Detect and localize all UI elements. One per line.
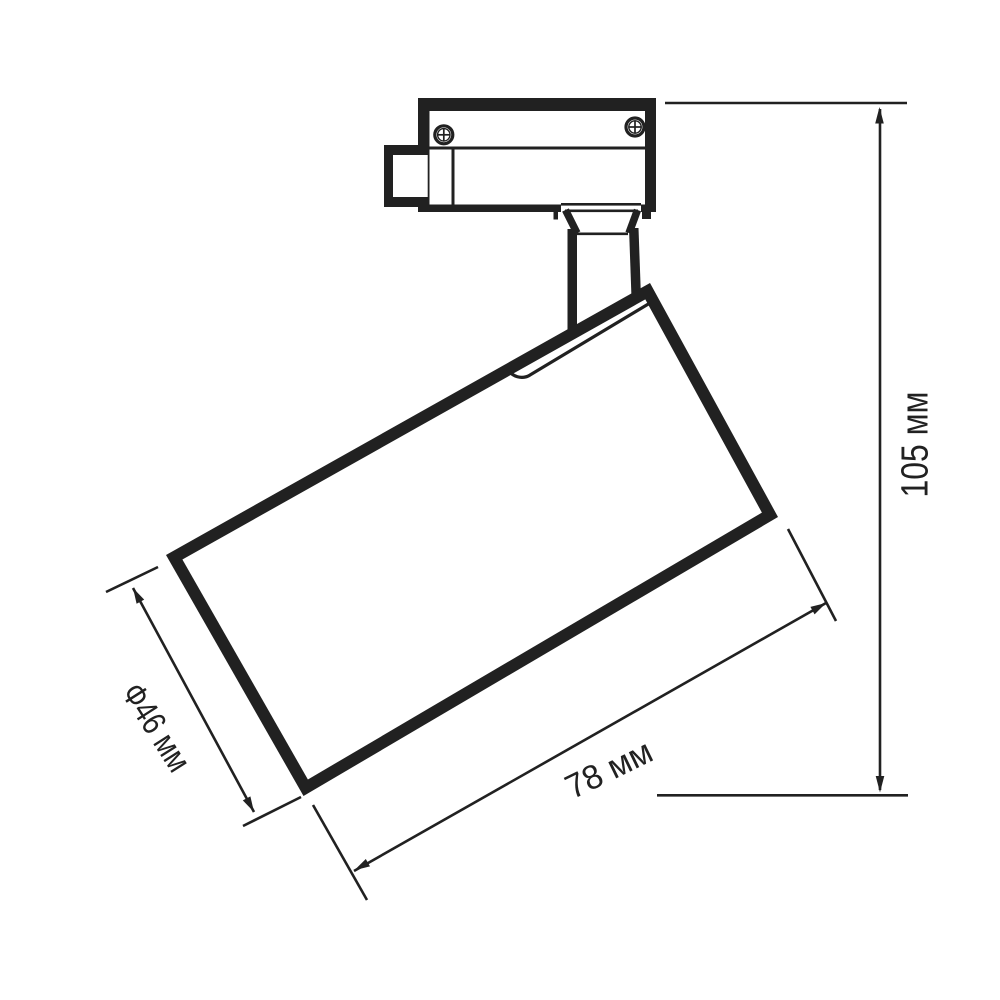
svg-text:105 мм: 105 мм [895,392,937,498]
